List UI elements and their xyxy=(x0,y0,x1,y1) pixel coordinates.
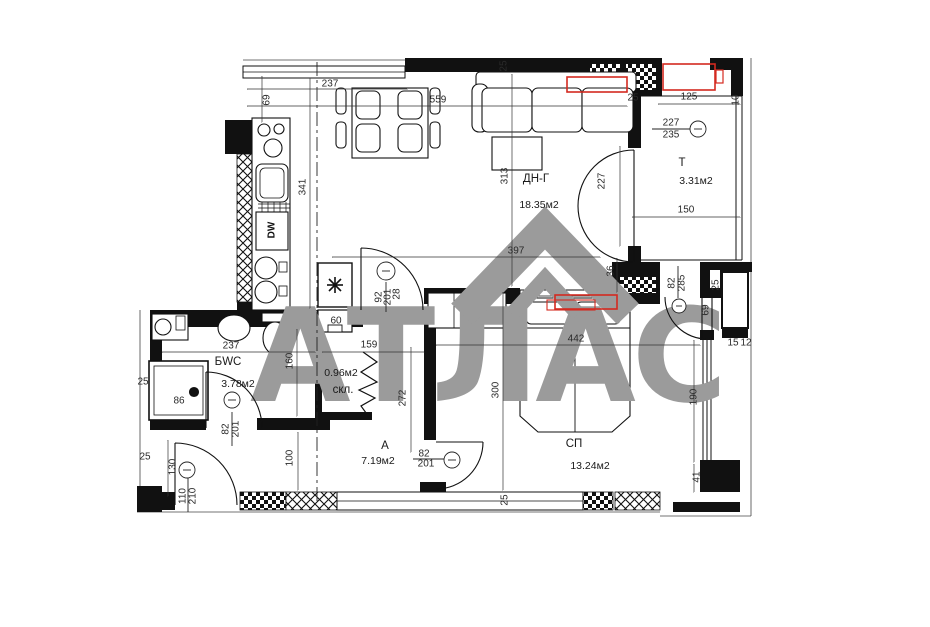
dim-label: 201 xyxy=(418,459,435,470)
dim-label: 442 xyxy=(568,334,585,345)
dim-label: 313 xyxy=(500,168,511,185)
floorplan-page: АТЛАС xyxy=(0,0,930,627)
dim-label: 60 xyxy=(330,316,341,327)
dim-label: 272 xyxy=(398,390,409,407)
dim-label: 25 xyxy=(137,377,148,388)
dim-label: 25 xyxy=(499,60,510,71)
dim-label: 235 xyxy=(663,130,680,141)
dim-label: 227 xyxy=(597,173,608,190)
dim-label: 69 xyxy=(701,304,712,315)
room-label: А xyxy=(381,440,389,452)
dim-label: 210 xyxy=(188,488,199,505)
dim-label: 150 xyxy=(678,205,695,216)
room-label: скл. xyxy=(333,384,354,396)
fixture-label: DW xyxy=(267,222,278,239)
dim-label: 69 xyxy=(262,94,273,105)
room-label: ДН-Г xyxy=(523,173,549,185)
dim-label: 201 xyxy=(231,421,242,438)
dim-label: 341 xyxy=(298,179,309,196)
room-label: СП xyxy=(566,438,583,450)
room-area-label: 0.96м2 xyxy=(324,367,358,379)
room-area-label: 18.35м2 xyxy=(519,199,558,211)
dim-label: 10 xyxy=(731,94,742,105)
dim-label: 159 xyxy=(361,340,378,351)
labels-layer: 2376955925251251022723515022731334139736… xyxy=(0,0,930,627)
dim-label: 227 xyxy=(663,118,680,129)
room-label: Т xyxy=(678,157,685,169)
dim-label: 25 xyxy=(139,452,150,463)
dim-label: 12 xyxy=(740,338,751,349)
dim-label: 86 xyxy=(173,396,184,407)
dim-label: 125 xyxy=(681,92,698,103)
dim-label: 28 xyxy=(392,288,403,299)
dim-label: 41 xyxy=(692,471,703,482)
room-area-label: 3.31м2 xyxy=(679,175,713,187)
dim-label: 397 xyxy=(508,246,525,257)
dim-label: 559 xyxy=(430,95,447,106)
room-area-label: 3.78м2 xyxy=(221,378,255,390)
dim-label: 25 xyxy=(627,93,638,104)
dim-label: 130 xyxy=(168,459,179,476)
dim-label: 237 xyxy=(322,79,339,90)
dim-label: 160 xyxy=(285,353,296,370)
dim-label: 285 xyxy=(677,275,688,292)
room-area-label: 7.19м2 xyxy=(361,455,395,467)
dim-label: 25 xyxy=(500,494,511,505)
room-label: БWC xyxy=(215,356,242,368)
dim-label: 300 xyxy=(491,382,502,399)
dim-label: 237 xyxy=(223,341,240,352)
dim-label: 15 xyxy=(727,338,738,349)
dim-label: 25 xyxy=(711,279,722,290)
room-area-label: 13.24м2 xyxy=(570,460,609,472)
dim-label: 100 xyxy=(285,450,296,467)
dim-label: 190 xyxy=(689,389,700,406)
dim-label: 36 xyxy=(606,265,617,276)
